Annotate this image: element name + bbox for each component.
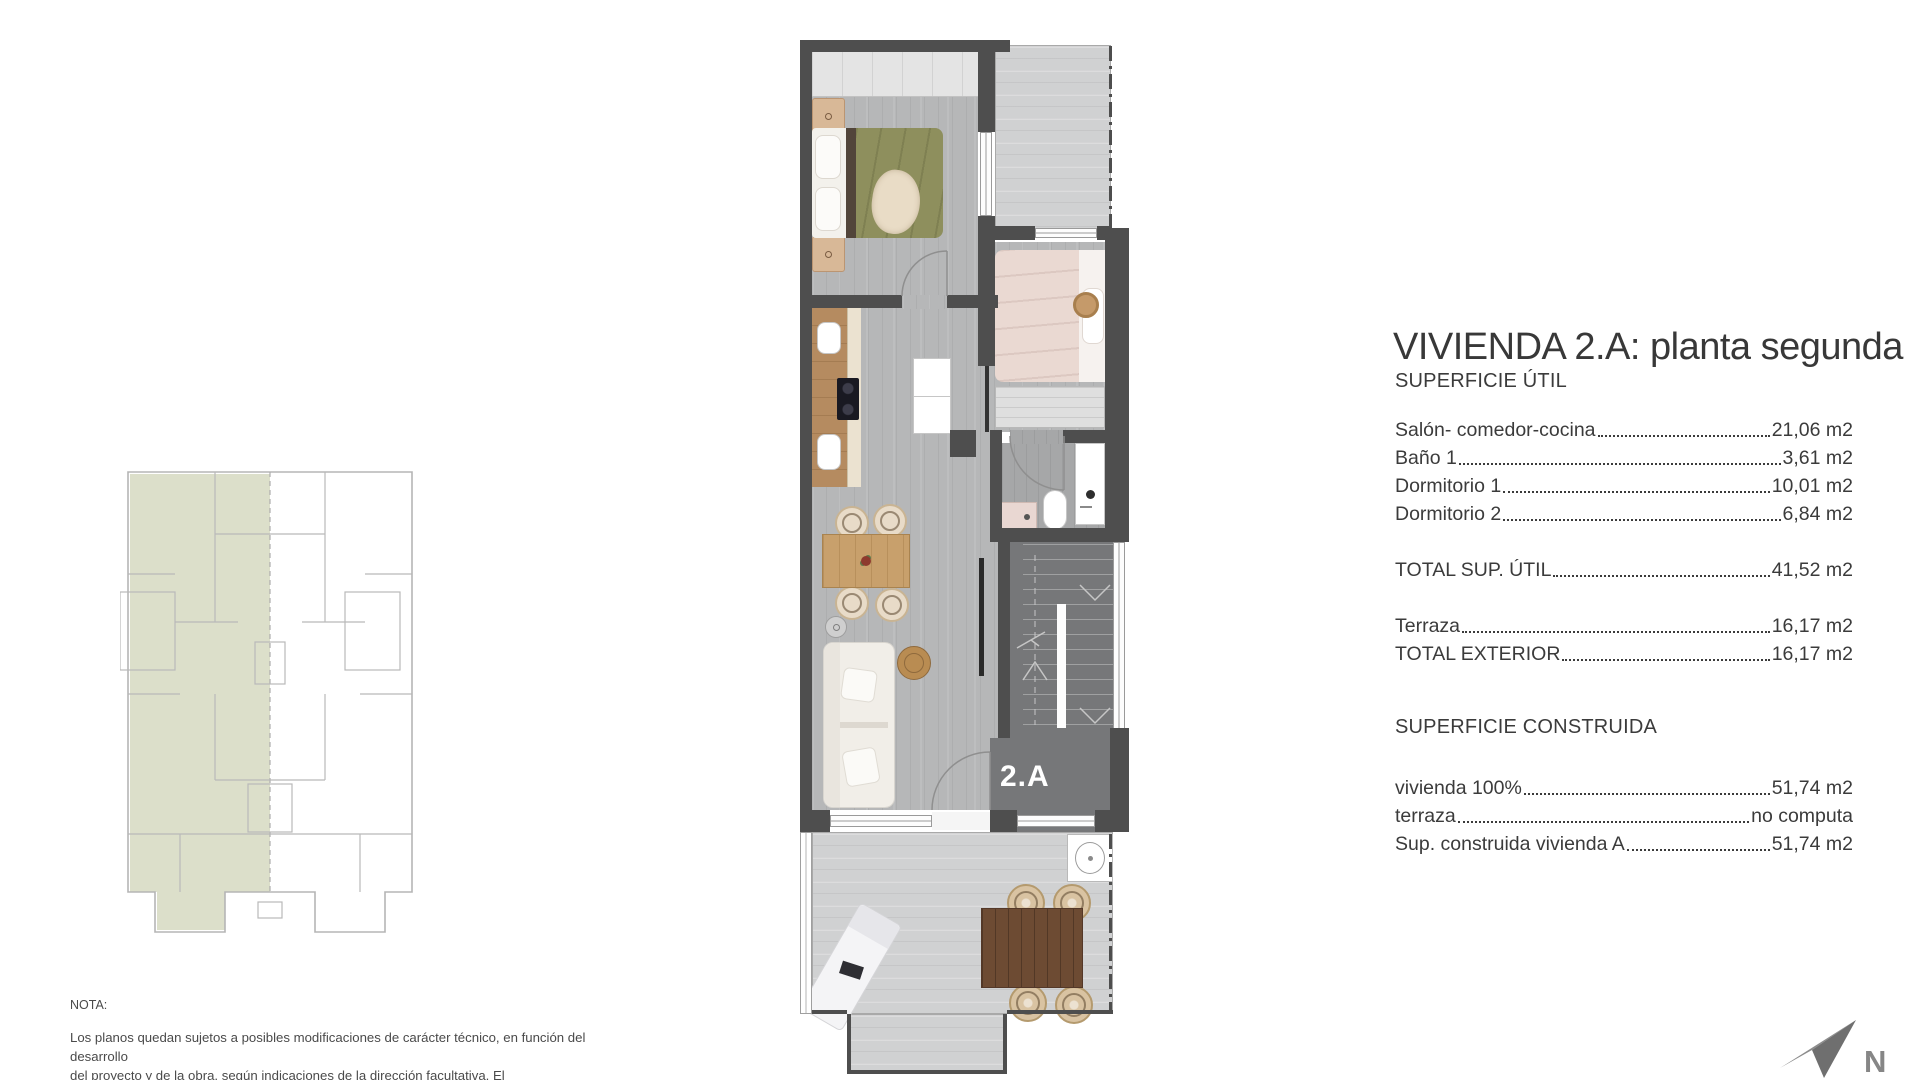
util-total: TOTAL SUP. ÚTIL41,52 m2: [1395, 554, 1853, 582]
note-line: del proyecto y de la obra, según indicac…: [70, 1066, 590, 1080]
section-heading-util: SUPERFICIE ÚTIL: [1395, 370, 1567, 393]
north-arrow-icon: [1772, 1016, 1862, 1080]
area-row: Terraza16,17 m2: [1395, 610, 1853, 638]
area-row: Salón- comedor-cocina21,06 m2: [1395, 414, 1853, 442]
area-row: terrazano computa: [1395, 800, 1853, 828]
door-swings-overlay: [795, 40, 1129, 1080]
stair-direction-marks: [1017, 555, 1110, 725]
area-total-row: TOTAL SUP. ÚTIL41,52 m2: [1395, 554, 1853, 582]
area-row: TOTAL EXTERIOR16,17 m2: [1395, 638, 1853, 666]
note-heading: NOTA:: [70, 998, 590, 1012]
area-row: Dormitorio 110,01 m2: [1395, 470, 1853, 498]
area-row: Dormitorio 26,84 m2: [1395, 498, 1853, 526]
north-label: N: [1864, 1044, 1886, 1080]
key-plan-highlight: [130, 474, 270, 930]
area-row: Sup. construida vivienda A51,74 m2: [1395, 828, 1853, 856]
key-plan: [120, 462, 420, 942]
note-block: NOTA: Los planos quedan sujetos a posibl…: [70, 998, 590, 1080]
note-line: Los planos quedan sujetos a posibles mod…: [70, 1028, 590, 1066]
area-row: vivienda 100%51,74 m2: [1395, 772, 1853, 800]
page-title: VIVIENDA 2.A: planta segunda: [1393, 326, 1863, 369]
plan-sheet: NOTA: Los planos quedan sujetos a posibl…: [0, 0, 1920, 1080]
construida-rows: vivienda 100%51,74 m2 terrazano computa …: [1395, 772, 1853, 856]
exterior-rows: Terraza16,17 m2 TOTAL EXTERIOR16,17 m2: [1395, 610, 1853, 666]
floor-plan: 2.A: [795, 40, 1129, 1080]
area-row: Baño 13,61 m2: [1395, 442, 1853, 470]
util-rows: Salón- comedor-cocina21,06 m2 Baño 13,61…: [1395, 414, 1853, 526]
section-heading-construida: SUPERFICIE CONSTRUIDA: [1395, 716, 1657, 739]
north-indicator: N: [1772, 1016, 1902, 1080]
